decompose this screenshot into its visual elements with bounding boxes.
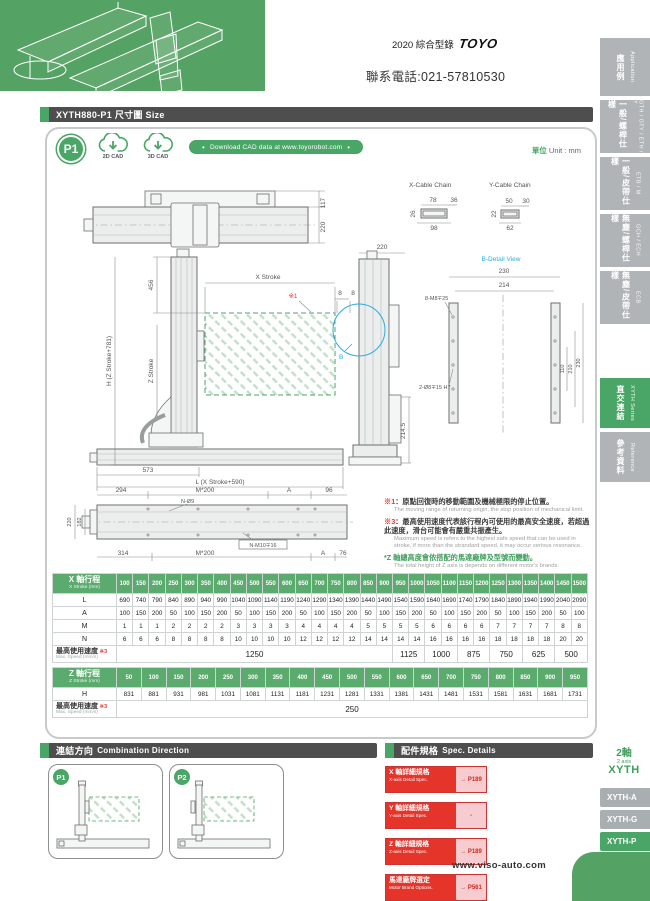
sidebar-tab-en: GTH / GTY / ETH / Y [632,100,644,153]
cell-value: 1331 [364,688,389,701]
cell-value: 3 [279,620,295,633]
cell-value: 7 [522,620,538,633]
cell-value: 100 [246,607,262,620]
page-reference: → P561 [456,875,486,900]
cell-value: 1040 [230,594,246,607]
cell-value: 1240 [295,594,311,607]
cell-value: 1090 [246,594,262,607]
stroke-value: 700 [439,668,464,688]
sidebar-tab-en: Application [629,51,635,82]
cell-value: 831 [117,688,142,701]
stroke-value: 100 [141,668,166,688]
cell-value: 18 [522,633,538,646]
cell-value: 3 [263,620,279,633]
cell-value: 16 [425,633,441,646]
spec-section-bar: 配件規格 Spec. Details [385,743,593,758]
cell-value: 4 [328,620,344,633]
max-speed-value: 875 [457,646,489,663]
cell-value: 1890 [506,594,522,607]
cell-value: 150 [263,607,279,620]
sidebar-tab-zh: 一般/螺桿仕樣 [607,100,629,153]
stroke-value: 150 [133,574,149,594]
cell-value: 150 [392,607,408,620]
stroke-value: 450 [315,668,340,688]
stroke-value: 750 [328,574,344,594]
note-3-en: Maximum speed is refers to the highest s… [394,536,592,550]
cell-value: 1581 [488,688,513,701]
variant-badge: P1 [57,135,85,163]
stroke-value: 100 [117,574,133,594]
cell-value: 840 [165,594,181,607]
cell-value: 4 [295,620,311,633]
stroke-value: 850 [513,668,538,688]
cad-3d-label: 3D CAD [138,154,178,160]
cell-value: 5 [376,620,392,633]
row-label: L [53,594,117,607]
cell-value: 1440 [360,594,376,607]
stroke-value: 850 [360,574,376,594]
bottom-view-drawing: 294 M*200 A 96 N-Ø9 [67,487,353,561]
cell-value: 931 [166,688,191,701]
svg-text:456: 456 [148,279,155,290]
stroke-value: 250 [165,574,181,594]
cable-chain-details: X-Cable Chain 78 36 26 98 Y-Cable Chain … [409,182,531,232]
cell-value: 16 [474,633,490,646]
cell-value: 6 [117,633,133,646]
table-row: H831881931981103110811131118112311281133… [53,688,588,701]
cell-value: 5 [360,620,376,633]
svg-text:N-M10∓16: N-M10∓16 [249,543,276,549]
stroke-value: 1450 [555,574,571,594]
page-title: XYTH880-P1 尺寸圖 Size [49,107,593,122]
stroke-value: 1050 [425,574,441,594]
cell-value: 1731 [563,688,588,701]
sidebar-tab-en: ETB / M [635,172,641,195]
svg-text:230: 230 [576,358,582,367]
cell-value: 740 [133,594,149,607]
cell-value: 150 [457,607,473,620]
svg-text:96: 96 [325,487,333,494]
svg-text:A: A [287,487,292,494]
cell-value: 3 [230,620,246,633]
stroke-value: 700 [311,574,327,594]
max-speed-value: 1000 [425,646,457,663]
cell-value: 1590 [409,594,425,607]
cell-value: 1281 [340,688,365,701]
footnotes: ※1：原點回復時的移動範圍及機械極限的停止位置。 The moving rang… [384,497,592,573]
cell-value: 1790 [474,594,490,607]
svg-text:8: 8 [351,290,355,297]
cell-value: 6 [474,620,490,633]
cell-value: 1290 [311,594,327,607]
stroke-value: 550 [263,574,279,594]
spec-detail-button-2[interactable]: Y 軸詳細規格Y-axis Detail Spec.- [385,802,487,829]
cell-value: 10 [263,633,279,646]
row-label: A [53,607,117,620]
cell-value: 8 [198,633,214,646]
cell-value: 50 [295,607,311,620]
cell-value: 1490 [376,594,392,607]
stroke-value: 1150 [457,574,473,594]
svg-text:L (X Stroke+590): L (X Stroke+590) [195,479,244,486]
cell-value: 50 [360,607,376,620]
cell-value: 200 [279,607,295,620]
svg-text:36: 36 [450,197,458,204]
max-speed-value: 625 [522,646,554,663]
max-speed-value: 750 [490,646,522,663]
cell-value: 50 [425,607,441,620]
cell-value: 1231 [315,688,340,701]
sidebar-tab-en: ECB [635,291,641,304]
stroke-value: 750 [463,668,488,688]
cell-value: 1990 [539,594,555,607]
stroke-value: 1350 [522,574,538,594]
sidebar-tab-3[interactable]: 一般/皮帶仕樣ETB / M [600,157,650,210]
cell-value: 50 [490,607,506,620]
cell-value: 100 [311,607,327,620]
cell-value: 6 [457,620,473,633]
combination-option-p1[interactable]: P1 [48,764,163,859]
sidebar-tab-zh: 一般/皮帶仕樣 [610,157,632,210]
stroke-value: 1400 [539,574,555,594]
max-speed-row: 最高使用速度 ※3Max. Speed (mm/s)250 [53,701,588,718]
stroke-value: 800 [344,574,360,594]
cell-value: 18 [490,633,506,646]
combination-option-p2[interactable]: P2 [169,764,284,859]
cell-value: 12 [344,633,360,646]
table-row: L690740790840890940990104010901140119012… [53,594,588,607]
dimension-panel: P1 2D CAD 3D CAD Download CAD data at ww… [45,127,597,739]
spec-title: 配件規格 Spec. Details [394,743,593,758]
cell-value: 200 [214,607,230,620]
sidebar-tab-zh: 無塵/螺桿仕樣 [610,214,632,267]
cad-2d-label: 2D CAD [93,154,133,160]
b-detail-view: B-Detail View 230 214 8-M8∓25 [419,256,583,433]
note-3-zh: ：最高使用速度代表該行程內可使用的最高安全速度，若超過此速度，滑台可能會有嚴重共… [384,517,589,535]
stroke-value: 1250 [490,574,506,594]
stroke-value: 300 [181,574,197,594]
sidebar-tab-7[interactable]: 參考資料Reference [600,432,650,482]
cell-value: 1131 [265,688,290,701]
cell-value: 2 [181,620,197,633]
sidebar-tab-en: Reference [629,443,635,472]
row-label: H [53,688,117,701]
download-cad-button[interactable]: Download CAD data at www.toyorobot.com [189,140,363,154]
svg-text:78: 78 [429,197,437,204]
cell-value: 200 [409,607,425,620]
stroke-value: 1200 [474,574,490,594]
cell-value: 8 [555,620,571,633]
svg-text:M*200: M*200 [196,550,215,557]
series-tab-xyth-p[interactable]: XYTH-P [600,832,650,851]
note-1-zh: ：原點回復時的移動範圍及機械極限的停止位置。 [395,497,553,506]
svg-text:76: 76 [339,550,347,557]
cell-value: 1190 [279,594,295,607]
cell-value: 1390 [344,594,360,607]
cell-value: 1740 [457,594,473,607]
cloud-download-icon [96,133,130,155]
stroke-value: 500 [246,574,262,594]
unit-zh: 單位 [532,146,547,155]
cell-value: 20 [555,633,571,646]
stroke-value: 150 [166,668,191,688]
cell-value: 2090 [571,594,587,607]
axis-count-zh: 2軸 [598,749,650,760]
max-speed-row: 最高使用速度 ※3Max. Speed (mm/s)12501125100087… [53,646,588,663]
svg-text:220: 220 [67,517,73,526]
row-label: M [53,620,117,633]
max-speed-value: 250 [117,701,588,718]
table-row: N666888810101010121212121414141416161616… [53,633,588,646]
sidebar-tab-6[interactable]: 直交連結XYTH Series [600,378,650,428]
unit-en: Unit : mm [549,146,581,155]
cell-value: 14 [409,633,425,646]
cell-value: 200 [474,607,490,620]
sidebar-tab-zh: 直交連結 [615,385,626,421]
cell-value: 1181 [290,688,315,701]
cell-value: 150 [328,607,344,620]
svg-text:H (Z Stroke+781): H (Z Stroke+781) [106,336,113,386]
svg-text:B: B [339,354,343,361]
note-ref-1: ※1 [384,497,395,506]
cell-value: 1381 [389,688,414,701]
cell-value: 6 [133,633,149,646]
stroke-value: 50 [117,668,142,688]
svg-text:214: 214 [499,282,510,289]
series-axis-title: 2軸 2 axis XYTH [598,749,650,777]
hero-illustration [0,0,265,91]
cell-value: 1140 [263,594,279,607]
svg-text:※1: ※1 [288,293,297,300]
sidebar-tab-zh: 無塵/皮帶仕樣 [610,271,632,324]
cell-value: 50 [555,607,571,620]
catalog-brand-line: 2020 綜合型錄 TOYO [392,36,497,51]
bar-accent [40,107,49,122]
bar-accent [40,743,49,758]
cell-value: 1481 [439,688,464,701]
series-family: XYTH [598,765,650,777]
contact-phone: 聯系電話:021-57810530 [366,66,505,85]
cell-value: 50 [230,607,246,620]
cell-value: 1 [117,620,133,633]
cell-value: 1 [149,620,165,633]
stroke-value: 500 [340,668,365,688]
svg-text:8: 8 [338,290,342,297]
website-link[interactable]: www.viso-auto.com [452,860,546,871]
cell-value: 1531 [463,688,488,701]
stroke-value: 450 [230,574,246,594]
x-stroke-spec-table: X 軸行程X Stroke (mm)1001502002503003504004… [52,573,588,663]
svg-text:62: 62 [506,225,514,232]
svg-text:182: 182 [77,517,83,526]
series-tab-xyth-g[interactable]: XYTH-G [600,810,650,829]
cell-value: 7 [490,620,506,633]
cell-value: 990 [214,594,230,607]
cell-value: 150 [522,607,538,620]
sidebar-tab-5[interactable]: 無塵/皮帶仕樣ECB [600,271,650,324]
cell-value: 14 [392,633,408,646]
cell-value: 2 [165,620,181,633]
p1-mini-diagram [53,779,157,853]
combination-section-bar: 連結方向 Combination Direction [40,743,377,758]
cell-value: 4 [311,620,327,633]
stroke-value: 650 [295,574,311,594]
svg-text:X-Cable Chain: X-Cable Chain [409,182,452,189]
bar-accent [385,743,394,758]
stroke-value: 600 [389,668,414,688]
stroke-value: 250 [216,668,241,688]
note-z-en: The total height of Z axis is depends on… [394,563,592,570]
cell-value: 10 [246,633,262,646]
stroke-value: 1100 [441,574,457,594]
svg-text:220: 220 [320,221,327,232]
stroke-value: 950 [392,574,408,594]
cell-value: 1081 [240,688,265,701]
cell-value: 6 [441,620,457,633]
svg-text:26: 26 [410,210,417,218]
cell-value: 940 [198,594,214,607]
max-speed-label: 最高使用速度 ※3Max. Speed (mm/s) [53,646,117,663]
cell-value: 1431 [414,688,439,701]
top-view-drawing: 117 220 [84,191,327,247]
svg-text:8-M8∓25: 8-M8∓25 [425,296,448,302]
stroke-value: 350 [198,574,214,594]
svg-text:22: 22 [491,210,498,218]
cell-value: 1681 [538,688,563,701]
cad-2d-download[interactable]: 2D CAD [93,133,133,160]
stroke-value: 200 [149,574,165,594]
svg-text:214.5: 214.5 [400,422,407,439]
sidebar-tab-4[interactable]: 無塵/螺桿仕樣GCH / ECH [600,214,650,267]
svg-text:230: 230 [499,268,510,275]
note-ref-3: ※3 [384,517,395,526]
spec-detail-button-4[interactable]: 馬達廠牌選定Motor Brand Options.→ P561 [385,874,487,901]
svg-text:2-Ø8∓15 H7: 2-Ø8∓15 H7 [419,385,451,391]
max-speed-label: 最高使用速度 ※3Max. Speed (mm/s) [53,701,117,718]
table-row: A100150200501001502005010015020050100150… [53,607,588,620]
note-1-en: The moving range of returning origin, th… [394,507,592,514]
cell-value: 16 [441,633,457,646]
cell-value: 1631 [513,688,538,701]
stroke-value: 600 [279,574,295,594]
sidebar-tab-en: GCH / ECH [635,224,641,256]
p2-mini-diagram [174,779,278,853]
svg-text:50: 50 [505,198,513,205]
svg-text:Z Stroke: Z Stroke [148,358,155,383]
cell-value: 12 [295,633,311,646]
cell-value: 7 [506,620,522,633]
toyo-logo: TOYO [458,36,499,51]
cell-value: 4 [344,620,360,633]
sidebar-tab-2[interactable]: 一般/螺桿仕樣GTH / GTY / ETH / Y [600,100,650,153]
max-speed-value: 1250 [117,646,393,663]
stroke-value: 650 [414,668,439,688]
catalog-page: 2020 綜合型錄 TOYO 聯系電話:021-57810530 XYTH880… [0,0,650,901]
cell-value: 5 [392,620,408,633]
catalog-year: 2020 綜合型錄 [392,37,454,51]
front-view-drawing: X Stroke ※1 8 8 456 Z Stroke H (Z Stroke… [90,249,355,491]
cell-value: 100 [376,607,392,620]
cell-value: 1690 [441,594,457,607]
cell-value: 200 [539,607,555,620]
cell-value: 6 [149,633,165,646]
cell-value: 690 [117,594,133,607]
cell-value: 100 [117,607,133,620]
cell-value: 1640 [425,594,441,607]
svg-text:X Stroke: X Stroke [256,274,281,281]
corner-decoration [572,852,650,901]
svg-text:220: 220 [377,244,388,251]
sidebar-tab-zh: 參考資料 [615,439,626,475]
cell-value: 200 [344,607,360,620]
cell-value: 1031 [216,688,241,701]
svg-text:294: 294 [116,487,127,494]
stroke-value: 900 [376,574,392,594]
stroke-value: 400 [290,668,315,688]
stroke-value: 900 [538,668,563,688]
spec-buttons: X 軸詳細規格X-axis Detail Spec.→ P189Y 軸詳細規格Y… [385,766,595,901]
sidebar-tab-en: XYTH Series [629,385,635,421]
cell-value: 2 [198,620,214,633]
cell-value: 2040 [555,594,571,607]
stroke-header-label: X 軸行程X Stroke (mm) [53,574,117,594]
x-stroke-table: X 軸行程X Stroke (mm)1001502002503003504004… [52,573,588,663]
sidebar-tab-1[interactable]: 應用例Application [600,38,650,96]
sidebar-tab-zh: 應用例 [615,54,626,81]
cell-value: 1340 [328,594,344,607]
cell-value: 18 [539,633,555,646]
cell-value: 18 [506,633,522,646]
svg-text:210: 210 [568,364,574,373]
stroke-value: 1000 [409,574,425,594]
max-speed-value: 500 [555,646,588,663]
svg-text:314: 314 [118,550,129,557]
size-section-bar: XYTH880-P1 尺寸圖 Size [40,107,593,122]
spec-title-en: Spec. Details [442,746,496,755]
cell-value: 1840 [490,594,506,607]
cad-3d-download[interactable]: 3D CAD [138,133,178,160]
cell-value: 7 [539,620,555,633]
cell-value: 8 [165,633,181,646]
combination-title-en: Combination Direction [97,746,189,755]
combination-title: 連結方向 Combination Direction [49,743,377,758]
svg-text:30: 30 [522,198,530,205]
cell-value: 881 [141,688,166,701]
cell-value: 100 [441,607,457,620]
spec-detail-button-1[interactable]: X 軸詳細規格X-axis Detail Spec.→ P189 [385,766,487,793]
cell-value: 14 [360,633,376,646]
row-label: N [53,633,117,646]
svg-text:110: 110 [560,365,566,374]
stroke-header-label: Z 軸行程Z Stroke (mm) [53,668,117,688]
stroke-value: 1300 [506,574,522,594]
cell-value: 1 [133,620,149,633]
cell-value: 790 [149,594,165,607]
page-reference: - [456,803,486,828]
cell-value: 8 [214,633,230,646]
svg-text:117: 117 [320,197,327,208]
cell-value: 16 [457,633,473,646]
cell-value: 14 [376,633,392,646]
series-tab-xyth-a[interactable]: XYTH-A [600,788,650,807]
cell-value: 100 [571,607,587,620]
cell-value: 8 [571,620,587,633]
cell-value: 150 [133,607,149,620]
cell-value: 100 [181,607,197,620]
stroke-value: 350 [265,668,290,688]
note-z-zh: *Z 軸總高度會依搭配的馬達廠牌及型號而變動。 [384,553,592,562]
gantry-line-art [0,0,265,91]
